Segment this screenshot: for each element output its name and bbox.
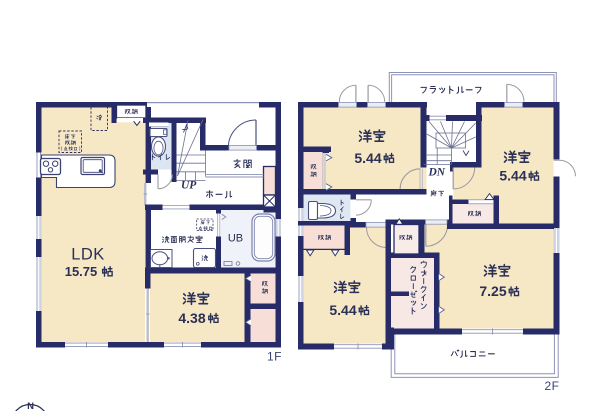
- svg-text:1F: 1F: [267, 349, 282, 363]
- svg-text:15.75: 15.75: [65, 264, 98, 279]
- svg-text:5.44: 5.44: [499, 168, 526, 184]
- svg-text:5.44: 5.44: [329, 302, 356, 318]
- svg-text:N: N: [27, 401, 34, 411]
- svg-text:5.44: 5.44: [354, 150, 381, 166]
- svg-text:UP: UP: [181, 179, 197, 191]
- svg-text:UB: UB: [228, 232, 243, 244]
- svg-text:4.38: 4.38: [178, 310, 205, 326]
- svg-text:LDK: LDK: [71, 246, 105, 264]
- svg-text:DN: DN: [428, 167, 446, 179]
- svg-text:2F: 2F: [544, 379, 559, 393]
- svg-text:7.25: 7.25: [479, 283, 506, 299]
